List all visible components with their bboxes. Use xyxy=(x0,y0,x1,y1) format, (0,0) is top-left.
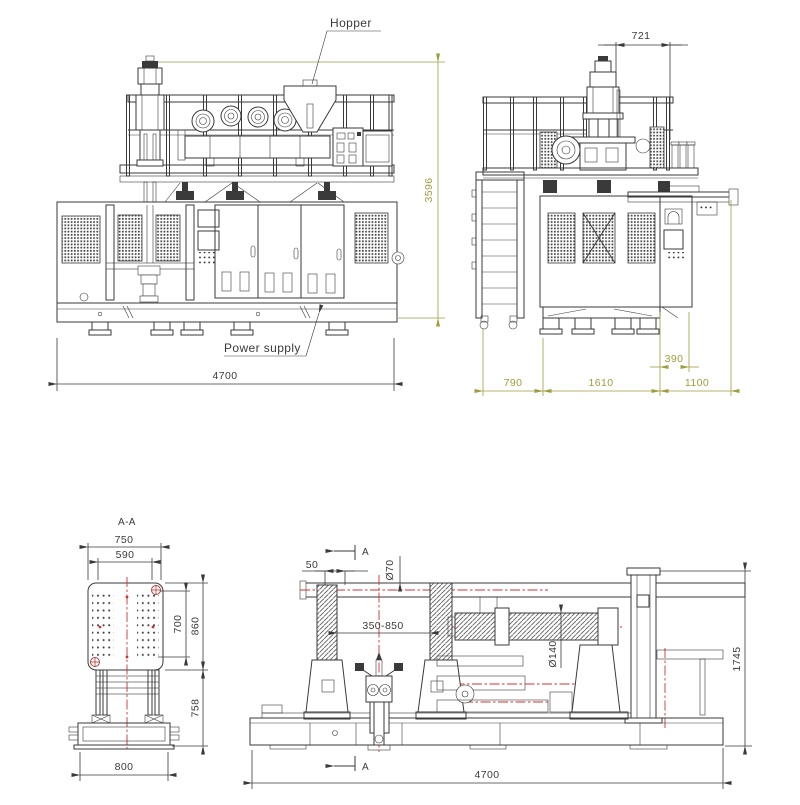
die-head xyxy=(138,266,160,302)
section-cut-bottom: A xyxy=(334,756,369,773)
travel-dim: 350-850 xyxy=(337,620,430,633)
dim-frame-height: 1745 xyxy=(731,647,743,672)
section-cut-top: A xyxy=(334,545,369,560)
cabinet-doors xyxy=(215,205,344,298)
base-width-dim: 800 xyxy=(80,752,168,781)
dim-stroke-50: 50 xyxy=(306,559,318,571)
dim-overall-width: 4700 xyxy=(213,370,238,382)
section-aa-view: A-A 750 590 700 xyxy=(69,517,208,781)
dim-inner-width: 590 xyxy=(116,549,135,561)
support-column-left xyxy=(304,585,350,719)
mold-platen xyxy=(88,577,163,752)
machine-cabinet xyxy=(57,202,404,303)
dim-ladder-790: 790 xyxy=(504,377,523,389)
dim-shaft: Ø140 xyxy=(547,640,559,667)
side-handwheel xyxy=(392,252,404,264)
hopper-label: Hopper xyxy=(330,16,372,30)
extruder-rollers xyxy=(192,106,296,132)
dim-platen-height: 860 xyxy=(190,617,202,636)
section-title: A-A xyxy=(118,517,136,528)
frame-column-right xyxy=(625,568,662,723)
side-view: 721 xyxy=(472,30,738,396)
machine-base xyxy=(57,303,397,335)
access-ladder xyxy=(472,172,524,329)
dim-travel: 350-850 xyxy=(362,620,403,632)
clamp-mesh-left xyxy=(118,215,142,261)
stroke-dim: 50 xyxy=(302,559,368,585)
extruder-barrel xyxy=(178,130,330,166)
dim-platen-width: 750 xyxy=(115,534,134,546)
engineering-drawing: 3596 xyxy=(0,0,800,800)
dim-offset-390: 390 xyxy=(665,353,684,365)
control-panel xyxy=(198,210,219,264)
platen-height-dims: 700 860 758 xyxy=(158,583,208,746)
dim-head-offset: 721 xyxy=(632,30,651,42)
platen-stand xyxy=(69,670,179,749)
dim-tie-bar: Ø70 xyxy=(384,559,396,580)
section-arrow-bottom-label: A xyxy=(362,762,369,773)
drawing-page: 3596 xyxy=(0,0,800,800)
machine-feet xyxy=(89,322,348,335)
power-supply-label: Power supply xyxy=(224,341,301,355)
dim-leg-height: 758 xyxy=(190,699,202,718)
dim-base-width: 800 xyxy=(115,761,134,773)
dim-conveyor-1100: 1100 xyxy=(685,377,709,389)
tie-bar xyxy=(300,581,745,617)
section-arrow-top-label: A xyxy=(362,547,369,558)
hopper-callout: Hopper xyxy=(312,16,381,84)
side-frame xyxy=(483,97,673,170)
station-view: A A xyxy=(250,545,752,789)
dim-hole-height: 700 xyxy=(172,615,184,634)
clamp-unit xyxy=(572,56,635,170)
dim-body-1610: 1610 xyxy=(589,377,614,389)
vent-mesh-right xyxy=(355,213,388,263)
base-length-dim: 4700 xyxy=(252,748,723,789)
side-body xyxy=(540,196,692,334)
platen-width-dims: 750 590 xyxy=(88,534,161,580)
clamp-mesh-right xyxy=(156,215,180,261)
dim-base-length: 4700 xyxy=(475,769,500,781)
side-feet xyxy=(540,318,659,334)
vent-mesh-left xyxy=(62,216,100,263)
tie-bar-dia-dim: Ø70 xyxy=(384,556,400,583)
dim-overall-height: 3596 xyxy=(423,178,435,203)
extrusion-head xyxy=(136,56,164,202)
platform-supports xyxy=(165,182,344,202)
front-view: 3596 xyxy=(57,16,445,391)
electrical-box xyxy=(333,128,392,166)
